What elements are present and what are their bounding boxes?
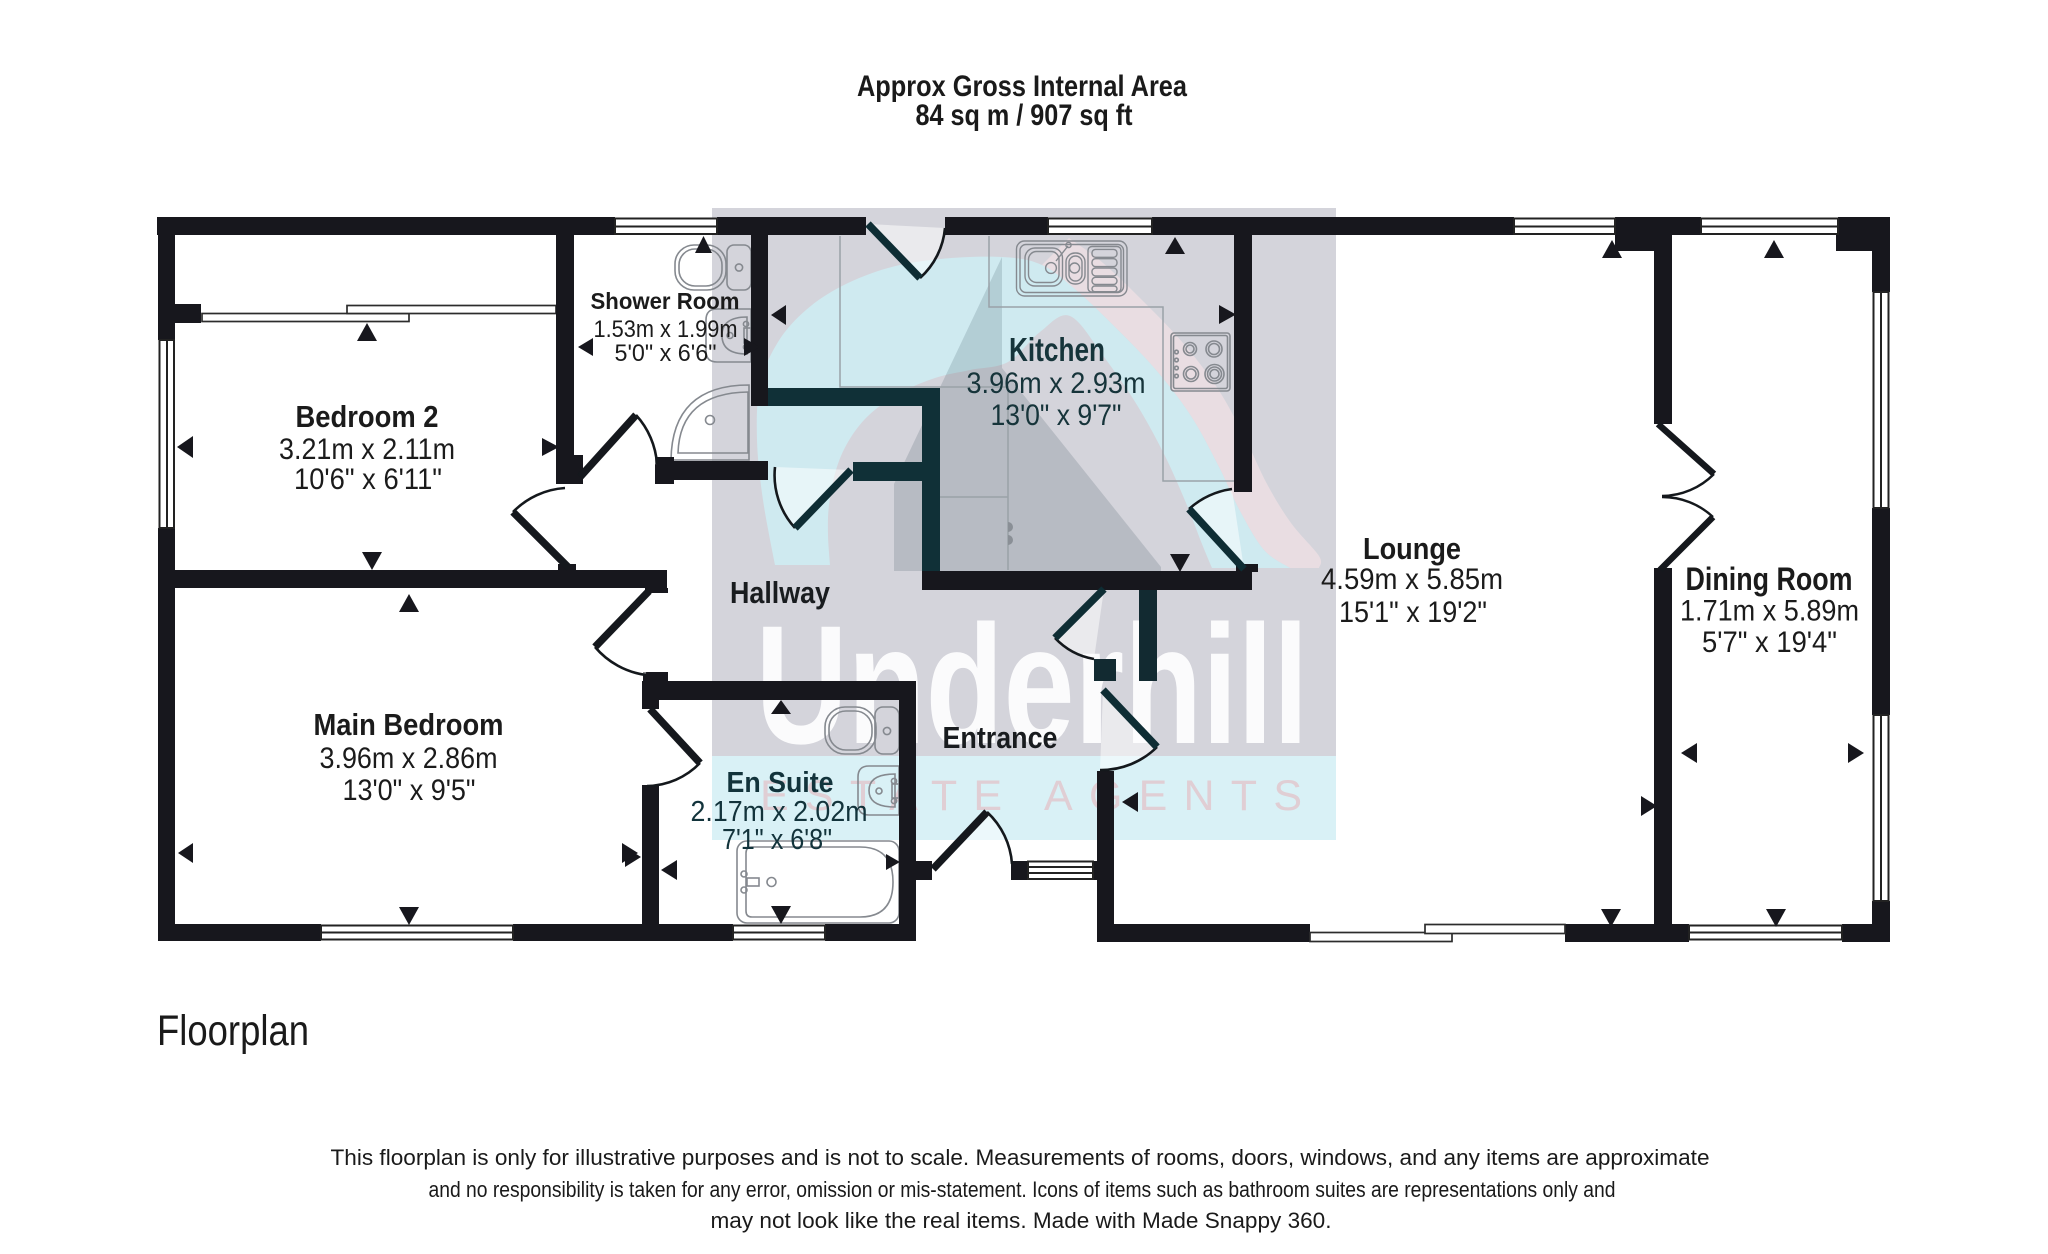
svg-text:5'7" x 19'4": 5'7" x 19'4" [1702, 626, 1837, 659]
svg-text:3.21m x 2.11m: 3.21m x 2.11m [279, 433, 455, 466]
svg-text:Shower Room: Shower Room [591, 288, 740, 314]
svg-text:13'0" x 9'7": 13'0" x 9'7" [991, 399, 1122, 432]
svg-text:5'0" x 6'6": 5'0" x 6'6" [615, 340, 717, 367]
svg-text:84 sq m / 907 sq ft: 84 sq m / 907 sq ft [916, 99, 1133, 132]
svg-text:Main Bedroom: Main Bedroom [314, 707, 504, 742]
svg-text:and no responsibility is taken: and no responsibility is taken for any e… [429, 1177, 1616, 1202]
svg-text:4.59m x 5.85m: 4.59m x 5.85m [1321, 563, 1503, 596]
svg-text:may not look like the real ite: may not look like the real items. Made w… [711, 1208, 1332, 1233]
svg-text:Hallway: Hallway [730, 575, 831, 610]
svg-text:13'0" x 9'5": 13'0" x 9'5" [343, 774, 476, 807]
svg-text:Bedroom 2: Bedroom 2 [296, 399, 439, 434]
svg-text:Lounge: Lounge [1363, 531, 1461, 566]
svg-text:Entrance: Entrance [943, 720, 1058, 755]
svg-text:10'6" x 6'11": 10'6" x 6'11" [294, 463, 442, 496]
svg-text:Dining Room: Dining Room [1686, 561, 1853, 597]
svg-text:Kitchen: Kitchen [1009, 331, 1105, 368]
svg-text:This floorplan is only for ill: This floorplan is only for illustrative … [331, 1145, 1710, 1170]
svg-text:1.71m x 5.89m: 1.71m x 5.89m [1680, 595, 1859, 628]
svg-text:1.53m x 1.99m: 1.53m x 1.99m [594, 316, 738, 343]
svg-text:En Suite: En Suite [727, 767, 834, 799]
svg-text:3.96m x 2.86m: 3.96m x 2.86m [320, 742, 498, 775]
svg-text:15'1" x 19'2": 15'1" x 19'2" [1339, 596, 1487, 629]
svg-text:3.96m x 2.93m: 3.96m x 2.93m [967, 367, 1146, 400]
svg-text:7'1" x 6'8": 7'1" x 6'8" [722, 824, 832, 856]
svg-text:Floorplan: Floorplan [157, 1007, 309, 1055]
